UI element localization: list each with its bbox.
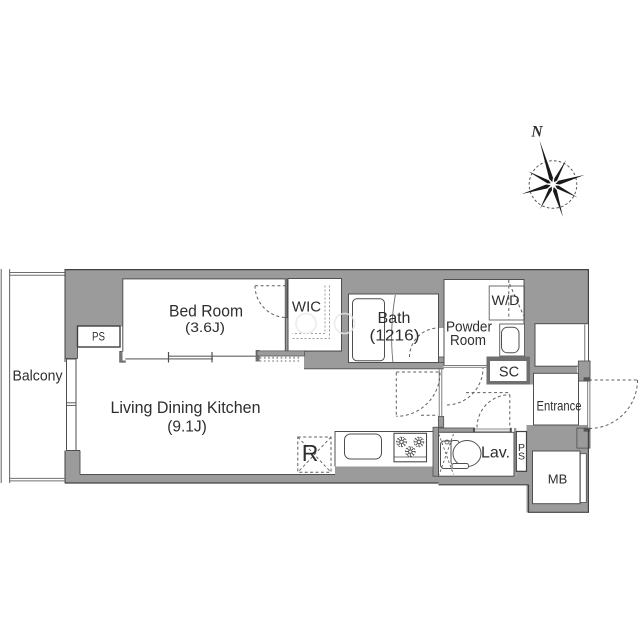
svg-text:S: S: [518, 451, 525, 463]
svg-text:PS: PS: [92, 332, 105, 344]
svg-text:(9.1J): (9.1J): [167, 418, 207, 435]
svg-text:WIC: WIC: [292, 298, 321, 315]
svg-text:W/D: W/D: [492, 293, 520, 308]
svg-text:Bath: Bath: [378, 310, 411, 327]
svg-text:R: R: [302, 440, 319, 466]
svg-text:(3.6J): (3.6J): [185, 319, 225, 335]
svg-text:Living Dining Kitchen: Living Dining Kitchen: [111, 399, 261, 417]
svg-text:MB: MB: [548, 472, 568, 487]
svg-text:Room: Room: [450, 333, 486, 349]
svg-text:Bed Room: Bed Room: [169, 303, 243, 321]
svg-text:N: N: [530, 124, 543, 141]
svg-text:SC: SC: [499, 365, 519, 381]
svg-text:Lav.: Lav.: [481, 445, 510, 462]
svg-text:Balcony: Balcony: [13, 368, 64, 384]
svg-text:(1216): (1216): [370, 328, 420, 345]
svg-text:Entrance: Entrance: [537, 398, 582, 413]
